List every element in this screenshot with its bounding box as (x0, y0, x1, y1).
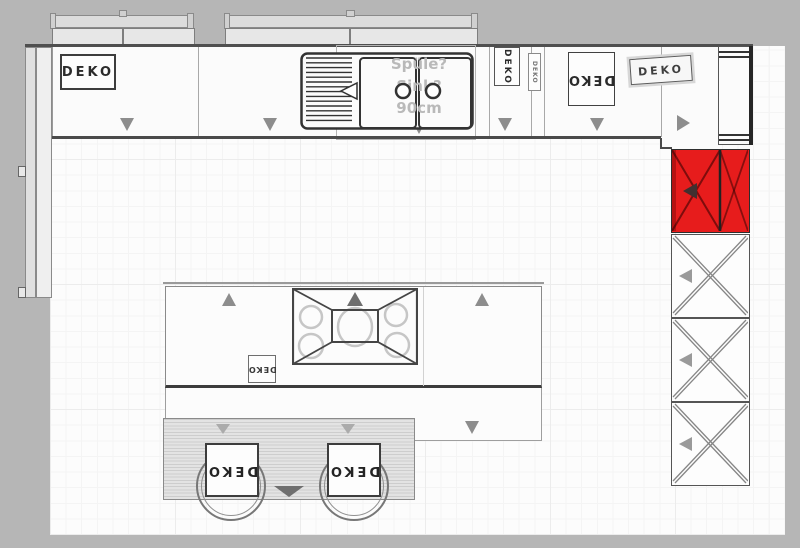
deko-item-counter-left[interactable]: DEKO (60, 54, 116, 90)
deko-label: DEKO (248, 365, 277, 374)
door-swing-up-icon (347, 292, 363, 306)
deko-label: DEKO (567, 72, 615, 87)
door-swing-down-icon (465, 421, 479, 434)
window-sill-mark (18, 166, 26, 177)
sink-annotation-line1: Spüle? (358, 53, 480, 75)
bar-direction-arrow-icon (274, 486, 304, 497)
cornice-end-cap (187, 13, 194, 29)
door-swing-down-icon (120, 118, 134, 131)
cooktop[interactable] (292, 288, 418, 365)
cornice-end-cap (50, 13, 56, 29)
tall-cabinet-highlighted-red[interactable] (671, 149, 750, 233)
tall-cabinet-x-1[interactable] (671, 234, 750, 318)
cabinet-shelf-line (719, 134, 752, 136)
deko-item-vertical[interactable]: DEKO (494, 47, 520, 86)
wall-cabinet-divider (349, 28, 351, 45)
deko-item-stool-left[interactable]: DEKO (205, 443, 259, 497)
cornice-joint (346, 10, 355, 17)
door-swing-down-icon (498, 118, 512, 131)
deko-label: DEKO (328, 463, 380, 478)
island-countertop-edge (163, 282, 544, 284)
island-cabinet-divider (423, 287, 424, 386)
cabinet-shelf-line (719, 56, 752, 58)
deko-label: DEKO (531, 61, 538, 84)
cornice-end-cap (224, 13, 230, 29)
door-swing-left-icon (679, 437, 692, 451)
door-swing-down-icon (341, 424, 355, 434)
left-wall-window (36, 47, 52, 298)
cabinet-divider (544, 47, 545, 137)
door-swing-right-icon (677, 115, 690, 131)
sink-annotation-line3: 90cm (358, 97, 480, 119)
deko-item-tilted[interactable]: DEKO (629, 55, 693, 85)
wall-cabinet-group-right[interactable] (225, 28, 478, 45)
wall-cabinet-divider (122, 28, 124, 45)
door-swing-down-icon (216, 424, 230, 434)
door-swing-down-icon (590, 118, 604, 131)
door-swing-up-icon (475, 293, 489, 306)
door-swing-left-icon (679, 269, 692, 283)
deko-label: DEKO (502, 49, 512, 85)
deko-label: DEKO (62, 65, 114, 80)
deko-item-stool-right[interactable]: DEKO (327, 443, 381, 497)
sink-annotation: Spüle? Sink? 90cm (358, 53, 480, 119)
cabinet-shelf-line (719, 139, 752, 141)
deko-label: DEKO (638, 62, 685, 78)
cornice-joint (119, 10, 127, 17)
left-wall-outer (25, 47, 36, 298)
cabinet-divider (198, 47, 199, 137)
right-wall-edge (749, 46, 753, 145)
door-swing-left-icon (683, 183, 697, 199)
deko-item-island[interactable]: DEKO (248, 355, 276, 383)
sink-annotation-line2: Sink? (358, 75, 480, 97)
tall-cabinet-x-3[interactable] (671, 402, 750, 486)
kitchen-floor-plan: DEKO DEKO DEKO (0, 0, 800, 548)
deko-item-flipped[interactable]: DEKO (568, 52, 615, 106)
cabinet-divider (489, 47, 490, 137)
window-sill-mark (18, 287, 26, 298)
tall-cabinet-top-right[interactable] (718, 46, 753, 145)
deko-label: DEKO (206, 463, 258, 478)
door-swing-up-icon (222, 293, 236, 306)
cabinet-shelf-line (719, 51, 752, 53)
door-swing-left-icon (679, 353, 692, 367)
deko-item-small[interactable]: DEKO (528, 53, 541, 91)
door-swing-down-icon (263, 118, 277, 131)
cornice-end-cap (471, 13, 478, 29)
tall-cabinet-x-2[interactable] (671, 318, 750, 402)
counter-front-edge (52, 136, 661, 139)
